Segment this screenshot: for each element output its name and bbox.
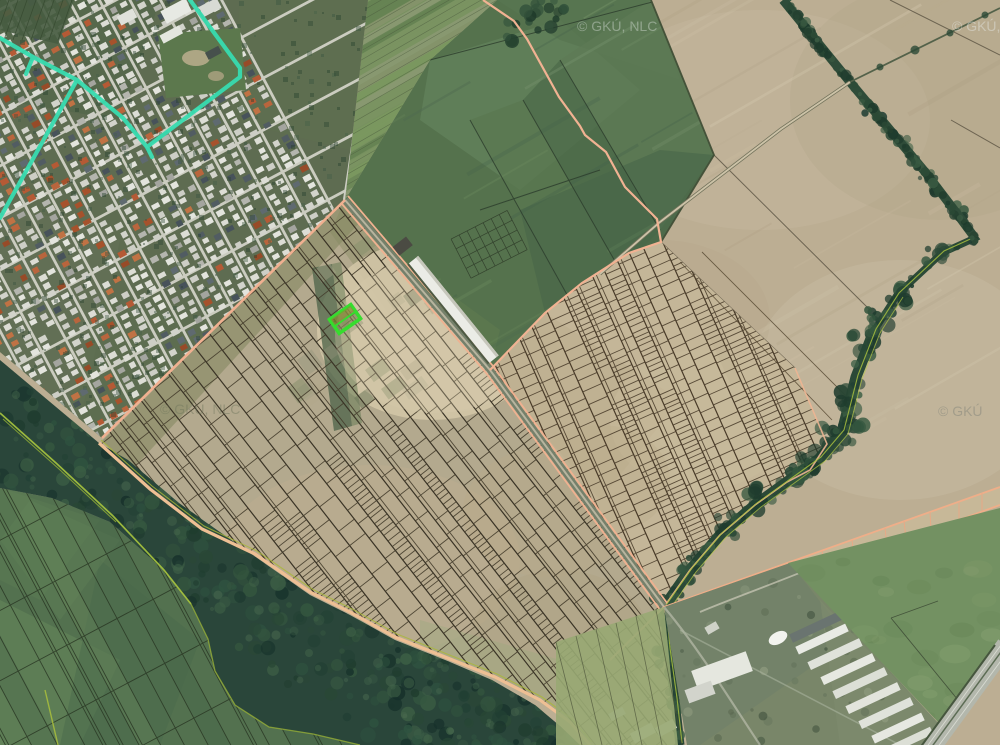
svg-text:© GKÚ: © GKÚ	[938, 403, 983, 419]
svg-text:© GKÚ, N: © GKÚ, N	[952, 18, 1000, 34]
svg-text:© GKÚ, NLC: © GKÚ, NLC	[160, 401, 240, 417]
svg-text:© GKÚ, NLC: © GKÚ, NLC	[577, 18, 657, 34]
